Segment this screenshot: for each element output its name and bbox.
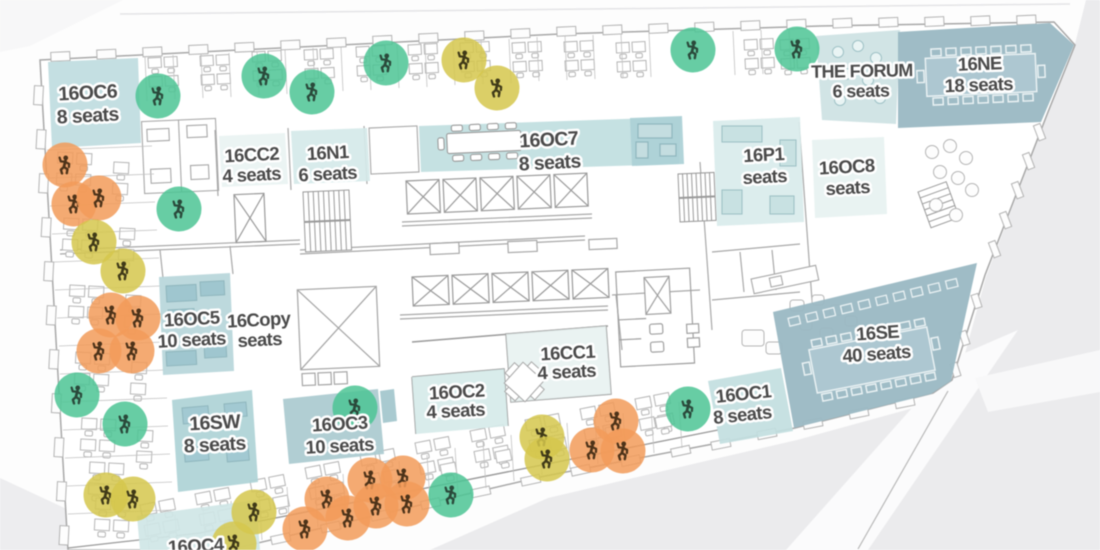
svg-text:8 seats: 8 seats (183, 432, 247, 457)
svg-text:seats: seats (825, 176, 871, 199)
svg-text:6 seats: 6 seats (832, 80, 890, 101)
svg-text:8 seats: 8 seats (56, 103, 120, 128)
svg-text:seats: seats (237, 328, 283, 351)
svg-text:16NE: 16NE (957, 52, 1002, 75)
svg-text:16OC5: 16OC5 (163, 307, 220, 331)
svg-text:16P1: 16P1 (743, 143, 785, 166)
svg-text:THE FORUM: THE FORUM (811, 60, 913, 82)
svg-text:4 seats: 4 seats (426, 398, 486, 422)
svg-text:10 seats: 10 seats (157, 327, 227, 352)
svg-text:6 seats: 6 seats (298, 161, 358, 185)
svg-text:16N1: 16N1 (306, 141, 349, 164)
svg-text:seats: seats (742, 165, 788, 188)
svg-text:16OC8: 16OC8 (818, 155, 875, 179)
svg-text:16SW: 16SW (189, 411, 242, 436)
svg-text:16OC4: 16OC4 (167, 533, 225, 550)
svg-text:8 seats: 8 seats (518, 150, 582, 175)
svg-text:16OC6: 16OC6 (58, 80, 119, 105)
svg-text:10 seats: 10 seats (305, 433, 375, 458)
svg-text:4 seats: 4 seats (222, 162, 282, 186)
svg-text:16Copy: 16Copy (227, 307, 293, 331)
svg-text:18 seats: 18 seats (944, 73, 1013, 96)
svg-text:16OC3: 16OC3 (311, 412, 368, 436)
svg-text:4 seats: 4 seats (537, 359, 597, 383)
svg-text:16OC7: 16OC7 (519, 127, 579, 152)
